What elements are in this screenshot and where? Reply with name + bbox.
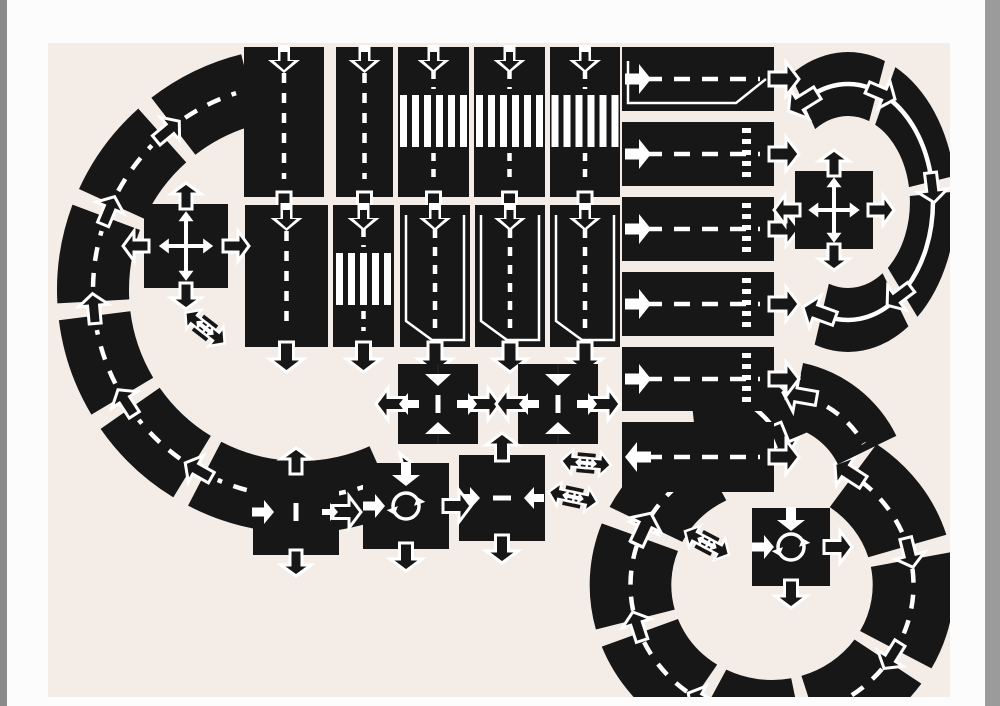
crosswalk-road-piece (474, 45, 545, 222)
crosswalk-stripe (372, 253, 379, 305)
crosswalk-stripe (488, 95, 495, 147)
crosswalk-stripe (336, 253, 343, 305)
edge-dot-mark (742, 353, 751, 358)
crosswalk-stripe (412, 95, 419, 147)
ramp-road-piece (550, 203, 620, 372)
horizontal-road-piece (622, 422, 799, 492)
crosswalk-stripe (524, 95, 531, 147)
crosswalk-road-piece (550, 45, 620, 222)
crosswalk-road-piece (333, 203, 394, 372)
crosswalk-stripe (424, 95, 431, 147)
crosswalk-stripe (460, 95, 467, 147)
crosswalk-stripe (552, 95, 559, 147)
straight-road-piece (336, 45, 393, 222)
crosswalk-stripe (612, 95, 619, 147)
crosswalk-stripe (360, 253, 367, 305)
crosswalk-stripe (512, 95, 519, 147)
edge-dot-mark (742, 203, 751, 208)
toy-road-set-photo (48, 43, 950, 697)
crosswalk-stripe (576, 95, 583, 147)
edge-dot-mark (742, 236, 751, 241)
horizontal-road-piece (622, 47, 799, 111)
horizontal-road-piece (622, 197, 799, 261)
edge-dot-mark (742, 322, 751, 327)
edge-dot-mark (742, 128, 751, 133)
ramp-road-piece (475, 203, 545, 372)
right-gray-bar (985, 0, 1000, 706)
straight-road-piece (245, 203, 328, 372)
edge-dot-mark (742, 364, 751, 369)
crosswalk-road-piece (398, 45, 469, 222)
edge-dot-mark (742, 161, 751, 166)
edge-dot-mark (742, 150, 751, 155)
crosswalk-stripe (564, 95, 571, 147)
left-gray-bar (0, 0, 7, 706)
straight-road-piece (244, 45, 324, 222)
ramp-road-piece (400, 203, 470, 372)
edge-dot-mark (742, 386, 751, 391)
crosswalk-stripe (500, 95, 507, 147)
crosswalk-stripe (536, 95, 543, 147)
edge-dot-mark (742, 247, 751, 252)
crosswalk-stripe (400, 95, 407, 147)
edge-dot-mark (742, 225, 751, 230)
edge-dot-mark (742, 214, 751, 219)
horizontal-road-piece (622, 272, 799, 336)
edge-dot-mark (742, 375, 751, 380)
edge-dot-mark (742, 289, 751, 294)
crosswalk-stripe (600, 95, 607, 147)
crosswalk-stripe (384, 253, 391, 305)
crosswalk-stripe (436, 95, 443, 147)
edge-dot-mark (742, 139, 751, 144)
edge-dot-mark (742, 278, 751, 283)
road-pieces-scene (48, 43, 950, 697)
edge-dot-mark (742, 397, 751, 402)
edge-dot-mark (742, 300, 751, 305)
edge-dot-mark (742, 172, 751, 177)
horizontal-road-piece (622, 347, 799, 411)
edge-dot-mark (742, 311, 751, 316)
crosswalk-stripe (448, 95, 455, 147)
crosswalk-stripe (348, 253, 355, 305)
horizontal-road-piece (622, 122, 799, 186)
crosswalk-stripe (476, 95, 483, 147)
crosswalk-stripe (588, 95, 595, 147)
